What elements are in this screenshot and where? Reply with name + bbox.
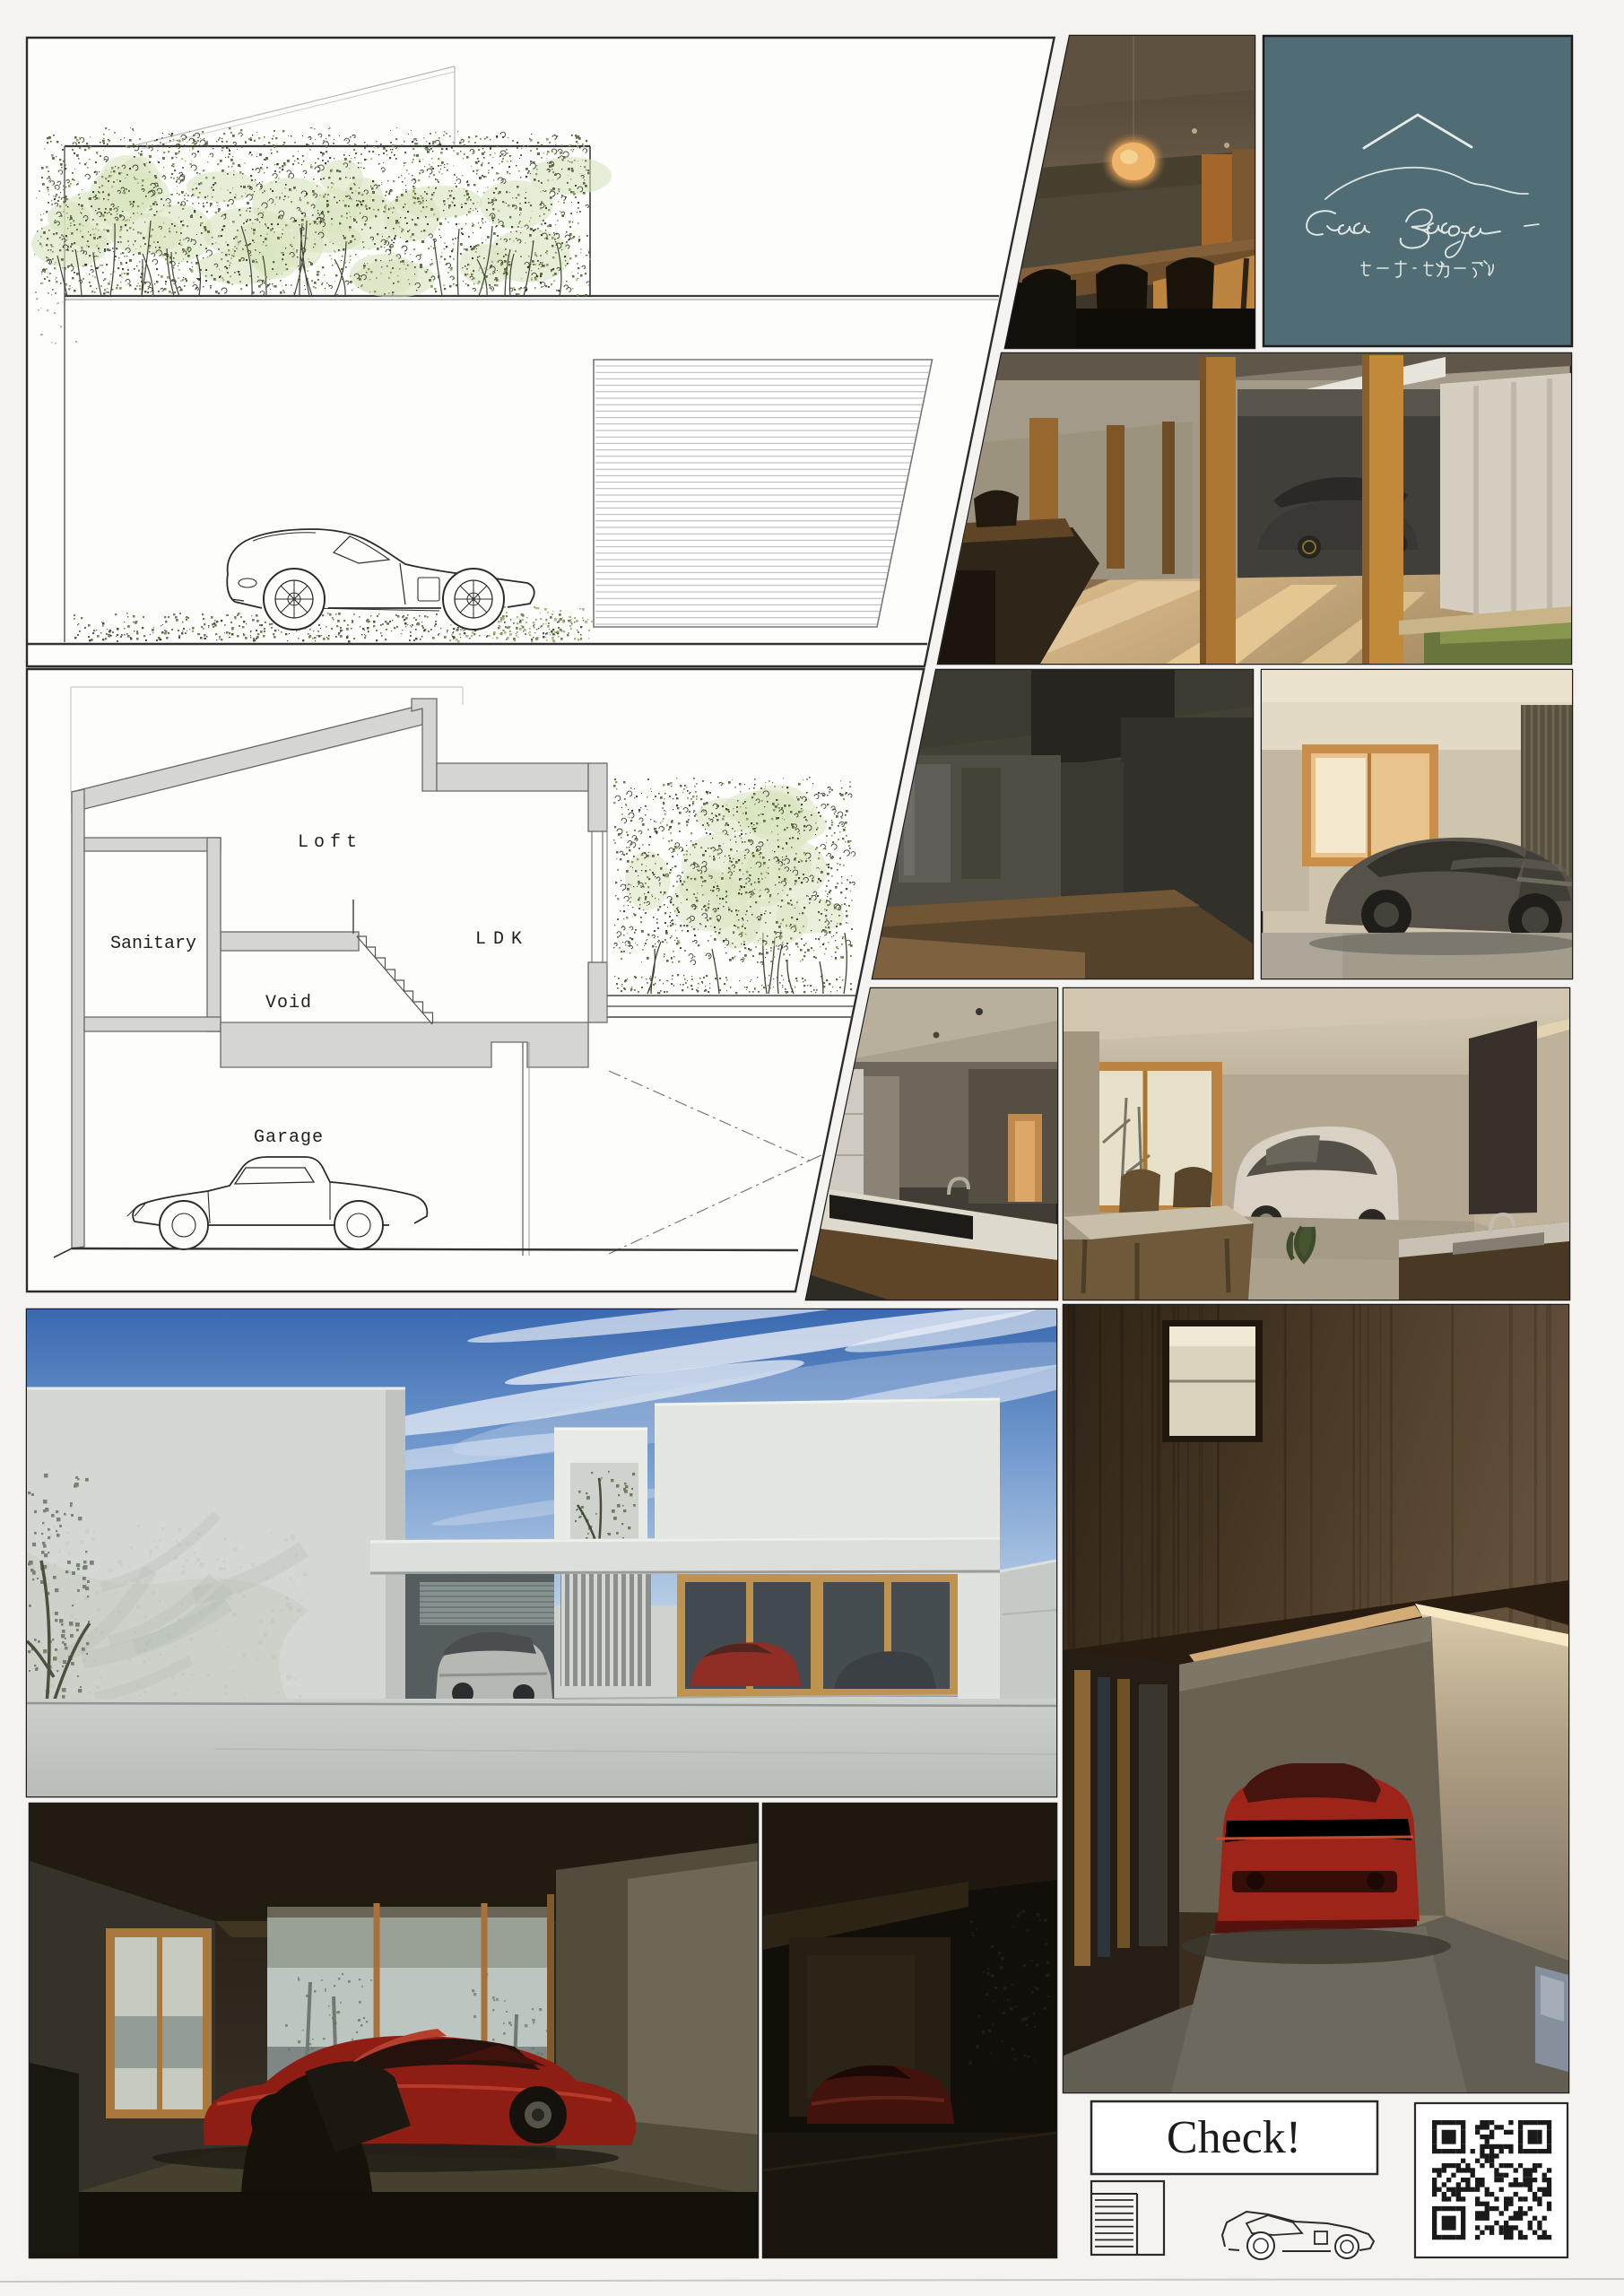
svg-text:Loft: Loft: [298, 832, 362, 853]
svg-text:Sanitary: Sanitary: [110, 934, 196, 954]
svg-text:LDK: LDK: [475, 929, 529, 950]
svg-text:Garage: Garage: [254, 1127, 324, 1148]
svg-text:Check!: Check!: [1167, 2112, 1301, 2163]
svg-text:Void: Void: [265, 993, 312, 1013]
